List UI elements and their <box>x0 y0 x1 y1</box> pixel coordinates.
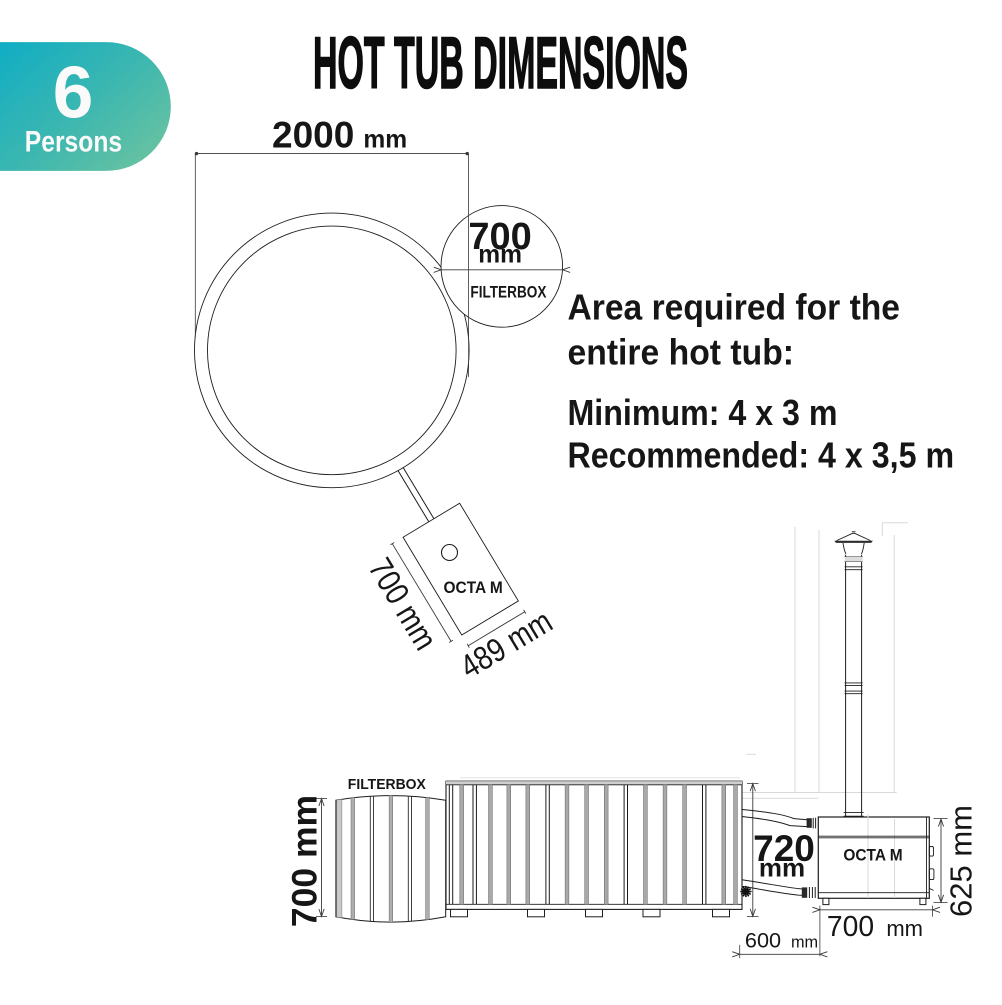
svg-text:mm: mm <box>886 916 923 941</box>
svg-text:Recommended: 4 x 3,5 m: Recommended: 4 x 3,5 m <box>568 435 955 476</box>
svg-text:entire hot tub:: entire hot tub: <box>568 332 795 373</box>
svg-text:mm: mm <box>478 241 522 268</box>
svg-text:700: 700 <box>827 910 874 942</box>
svg-text:600: 600 <box>745 927 781 952</box>
svg-text:mm: mm <box>363 127 407 154</box>
svg-text:625 mm: 625 mm <box>944 805 979 917</box>
svg-text:HOT TUB DIMENSIONS: HOT TUB DIMENSIONS <box>313 23 688 104</box>
svg-text:Persons: Persons <box>25 126 122 159</box>
svg-text:FILTERBOX: FILTERBOX <box>348 777 426 793</box>
svg-text:6: 6 <box>53 53 94 134</box>
svg-text:FILTERBOX: FILTERBOX <box>470 282 547 301</box>
svg-text:mm: mm <box>759 852 805 882</box>
svg-text:2000: 2000 <box>272 115 354 156</box>
svg-text:mm: mm <box>791 933 818 951</box>
svg-text:Area required for the: Area required for the <box>568 287 901 328</box>
svg-text:700 mm: 700 mm <box>285 795 325 927</box>
svg-text:OCTA M: OCTA M <box>444 578 503 597</box>
svg-text:Minimum: 4 x 3 m: Minimum: 4 x 3 m <box>568 392 838 433</box>
svg-text:OCTA M: OCTA M <box>843 846 902 864</box>
